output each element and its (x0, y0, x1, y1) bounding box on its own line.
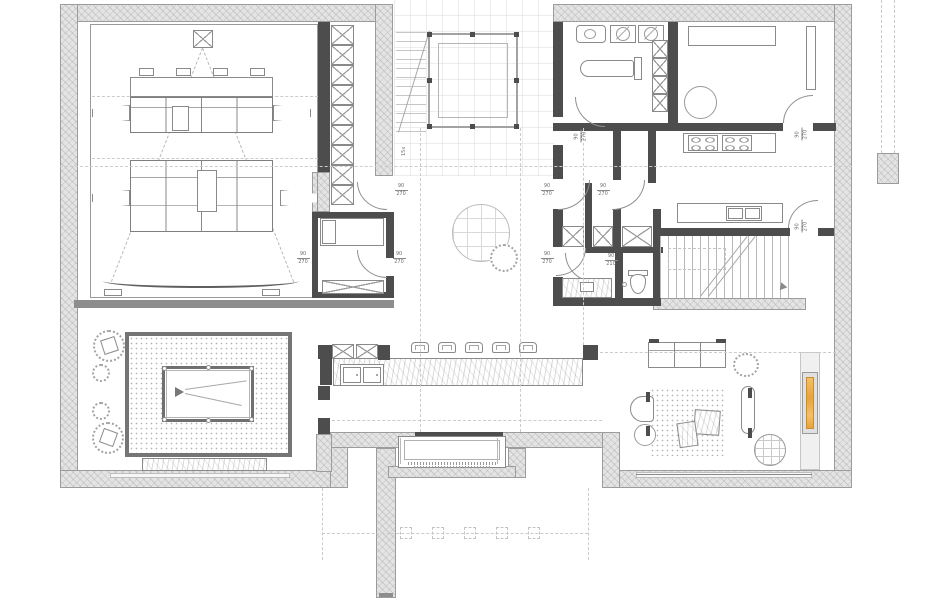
side-table (92, 402, 110, 420)
plant (733, 353, 759, 377)
sofa (648, 342, 726, 368)
interior-wall (553, 298, 657, 306)
door-width-label: 90 (398, 184, 404, 189)
pergola-post (432, 527, 444, 539)
interior-wall (318, 22, 330, 172)
pergola-dashed (322, 488, 323, 560)
speaker (176, 68, 191, 76)
cinema-back-platform (130, 77, 273, 97)
glass-stair-inner (438, 43, 508, 118)
ottoman (693, 409, 721, 436)
door-height-label: 270 (396, 192, 406, 197)
shelf-unit (331, 25, 354, 45)
mullion (514, 78, 519, 83)
window-strip (110, 473, 290, 478)
datum-line (420, 128, 421, 432)
wall-pier (583, 345, 598, 360)
frame-tick (646, 392, 650, 402)
seat-console (172, 106, 189, 131)
cabinet-door (343, 367, 361, 383)
interior-hatched-wall (653, 298, 806, 310)
fireplace-insert (806, 377, 814, 429)
shelf-unit (331, 125, 354, 145)
mullion (427, 124, 432, 129)
wall-pier (318, 386, 330, 400)
window-midline (636, 474, 812, 475)
datum-line (600, 352, 836, 353)
door-swing (612, 180, 645, 210)
speaker (213, 68, 228, 76)
round-table (684, 86, 717, 119)
interior-wall (613, 209, 621, 247)
pouf (634, 424, 656, 446)
door-size-tag: 90270 (796, 218, 809, 236)
screen-speaker (104, 289, 122, 296)
interior-hatched-wall (316, 434, 332, 472)
wall-pier (378, 345, 390, 360)
frame-tick (716, 339, 726, 343)
mullion (427, 32, 432, 37)
sink-bowl (728, 208, 743, 219)
stair-count-note: 15x (402, 147, 407, 156)
shelf-unit (331, 45, 354, 65)
guide-line (92, 158, 318, 159)
cinema-south-wall (74, 300, 394, 308)
tick-marks (400, 438, 407, 464)
pool-pocket (249, 417, 254, 422)
door-size-tag: 90270 (390, 252, 408, 265)
door-swing (357, 182, 387, 210)
bar-stool (438, 342, 456, 353)
wall-pier (320, 357, 332, 385)
shelf-unit (331, 165, 354, 185)
grid-table (754, 434, 786, 466)
floor-plan-canvas: 15x (0, 0, 926, 606)
stair-flight-dashed (396, 28, 426, 132)
bar-stool (492, 342, 510, 353)
mullion (470, 32, 475, 37)
shelf-unit (652, 58, 668, 76)
toilet (630, 274, 646, 294)
door-size-tag: 90270 (538, 184, 556, 197)
pergola-dashed (588, 488, 589, 560)
frame-tick (646, 426, 650, 436)
cue-stick (185, 380, 247, 390)
datum-line (332, 420, 602, 421)
side-table (92, 364, 110, 382)
micro-annotation (408, 462, 498, 465)
door-size-tag: 90 270 (392, 184, 410, 197)
sink-bowl (745, 208, 760, 219)
lounger-stand (634, 57, 642, 80)
interior-wall (386, 276, 394, 298)
interior-wall (553, 123, 685, 131)
pool-pocket (162, 366, 167, 371)
pergola-post (496, 527, 508, 539)
pergola-post (528, 527, 540, 539)
tick-marks (497, 438, 504, 464)
pool-pocket (206, 365, 211, 370)
bench (142, 458, 267, 471)
shelf-unit (652, 94, 668, 112)
interior-wall (685, 123, 783, 131)
cabinet-door (363, 367, 381, 383)
wardrobe (562, 226, 584, 247)
exterior-wall (834, 4, 852, 488)
interior-wall (668, 22, 678, 123)
interior-wall (818, 228, 834, 236)
cabinet-x (332, 344, 354, 359)
pergola-dashed (322, 533, 588, 534)
pergola-post (400, 527, 412, 539)
mullion (427, 78, 432, 83)
speaker (250, 68, 265, 76)
mullion (514, 32, 519, 37)
door-size-tag: 90270 (538, 252, 556, 265)
frame-tick (748, 388, 752, 398)
massage-lounger (580, 60, 634, 77)
speaker (139, 68, 154, 76)
door-size-tag: 90270 (294, 252, 312, 265)
interior-wall (657, 228, 790, 236)
exterior-wall (602, 432, 620, 488)
shelf-unit (331, 85, 354, 105)
daybed-pillow (322, 220, 336, 244)
shelf-unit (331, 185, 354, 205)
pergola-post (464, 527, 476, 539)
gas-hob (688, 135, 718, 151)
shelf-unit (331, 105, 354, 125)
datum-line (583, 128, 584, 345)
frame-tick (649, 339, 659, 343)
gas-hob (722, 135, 752, 151)
exterior-wall (553, 4, 852, 22)
cue-stick (185, 393, 242, 406)
ottoman (676, 421, 698, 448)
wardrobe (593, 226, 613, 247)
sink-bowl (584, 29, 596, 39)
lounge-armchair (630, 396, 654, 422)
cabinet-x (356, 344, 378, 359)
storage-cabinet (322, 280, 384, 294)
frame-tick (748, 428, 752, 438)
shelf-unit (331, 145, 354, 165)
mullion (514, 124, 519, 129)
door-size-tag: 90270 (594, 184, 612, 197)
datum-line (520, 128, 521, 432)
washer-drum (616, 27, 630, 41)
micro-annotation (414, 466, 492, 468)
window-strip (636, 472, 812, 478)
door-size-tag: 90270 (796, 126, 809, 144)
interior-wall (553, 145, 563, 179)
desk (688, 26, 776, 46)
shelf-unit (652, 40, 668, 58)
garden-wall-cap (379, 593, 393, 597)
datum-line (881, 0, 882, 153)
interior-wall (553, 22, 563, 117)
tall-cabinet (806, 26, 816, 90)
interior-wall (648, 131, 656, 183)
datum-line (60, 166, 852, 167)
seat-console (197, 170, 217, 212)
screen-speaker (262, 289, 280, 296)
stair-walk-line (668, 248, 726, 270)
pool-table (162, 366, 254, 422)
interior-wall (813, 123, 836, 131)
projector (193, 30, 213, 48)
bar-stool (465, 342, 483, 353)
interior-wall (312, 218, 318, 298)
door-swing (357, 250, 387, 278)
exterior-wall (60, 4, 393, 22)
pool-pocket (206, 418, 211, 423)
shelf-unit (331, 65, 354, 85)
cinema-seat-row-back (130, 97, 273, 133)
door-size-tag-wc: 90210 (602, 254, 620, 267)
exterior-wall (60, 4, 78, 488)
cinema-screen (103, 272, 299, 288)
rack-triangle (175, 387, 184, 397)
door-size-tag: 90270 (575, 128, 588, 146)
bar-stool (519, 342, 537, 353)
door-swing (783, 95, 813, 123)
plant (490, 244, 518, 272)
mullion (470, 124, 475, 129)
dryer-drum (644, 27, 658, 41)
shelf-unit (652, 76, 668, 94)
window-well-inner (404, 440, 500, 460)
datum-line (894, 0, 895, 153)
pool-pocket (249, 366, 254, 371)
wall-pier (318, 418, 330, 434)
interior-wall (613, 131, 621, 180)
pool-pocket (162, 417, 167, 422)
exterior-wall (375, 4, 393, 176)
chimney-pier (877, 153, 899, 184)
floor-drain (622, 282, 627, 287)
wardrobe (622, 226, 652, 247)
